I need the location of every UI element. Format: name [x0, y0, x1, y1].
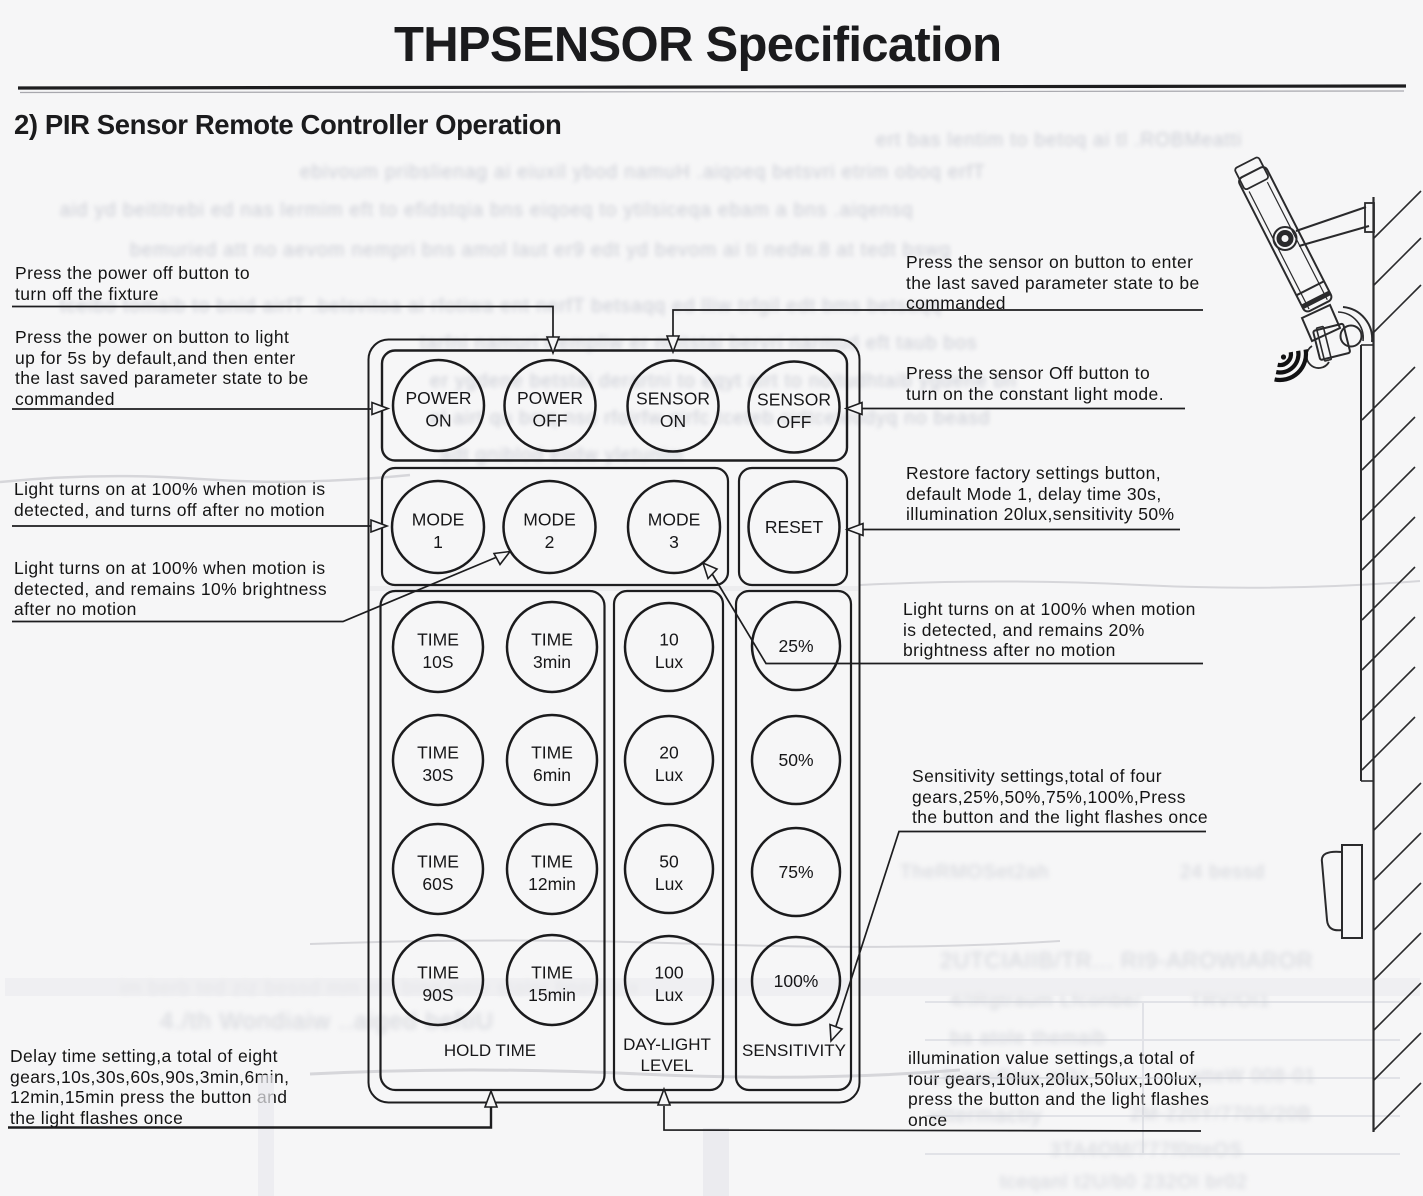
- svg-text:DAY-LIGHTLEVEL: DAY-LIGHTLEVEL: [623, 1035, 711, 1075]
- svg-text:SENSOROFF: SENSOROFF: [757, 390, 831, 433]
- svg-text:TIME60S: TIME60S: [417, 852, 459, 895]
- svg-text:TIME30S: TIME30S: [417, 743, 459, 786]
- svg-text:POWEROFF: POWEROFF: [517, 388, 583, 431]
- svg-text:50%: 50%: [778, 750, 813, 770]
- svg-text:25%: 25%: [778, 636, 813, 656]
- svg-text:TIME12min: TIME12min: [528, 852, 576, 895]
- svg-text:75%: 75%: [778, 862, 813, 882]
- svg-text:TIME6min: TIME6min: [531, 743, 573, 786]
- svg-text:SENSITIVITY: SENSITIVITY: [742, 1041, 846, 1060]
- svg-text:SENSORON: SENSORON: [636, 389, 710, 432]
- svg-text:MODE1: MODE1: [412, 510, 465, 553]
- svg-text:TIME3min: TIME3min: [531, 630, 573, 673]
- svg-text:MODE3: MODE3: [648, 510, 701, 553]
- svg-text:20Lux: 20Lux: [655, 743, 683, 786]
- svg-text:100%: 100%: [774, 971, 819, 991]
- svg-text:MODE2: MODE2: [523, 510, 576, 553]
- svg-text:POWERON: POWERON: [405, 388, 471, 431]
- svg-text:10Lux: 10Lux: [655, 630, 683, 673]
- svg-text:HOLD TIME: HOLD TIME: [444, 1041, 536, 1060]
- svg-text:TIME10S: TIME10S: [417, 630, 459, 673]
- svg-text:RESET: RESET: [765, 517, 824, 537]
- svg-text:50Lux: 50Lux: [655, 852, 683, 895]
